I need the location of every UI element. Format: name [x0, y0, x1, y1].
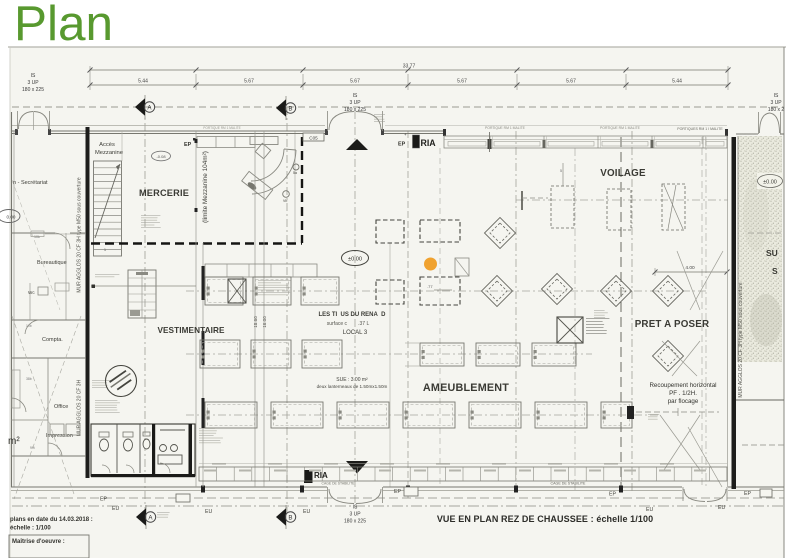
svg-text:±0.00: ±0.00 [763, 179, 777, 185]
svg-text:Compta.: Compta. [42, 337, 63, 343]
svg-text:4.00: 4.00 [685, 265, 695, 271]
svg-text:PRET A POSER: PRET A POSER [635, 319, 710, 330]
svg-text:5.67: 5.67 [566, 79, 576, 85]
svg-text:B: B [288, 105, 292, 112]
svg-text:+: + [404, 132, 407, 137]
svg-text:Maîtrise d'oeuvre :: Maîtrise d'oeuvre : [12, 539, 65, 545]
svg-text:180 x 225: 180 x 225 [22, 87, 44, 93]
svg-text:échelle : 1/100: échelle : 1/100 [10, 526, 51, 532]
svg-text:Recoupement horizontal: Recoupement horizontal [649, 382, 716, 389]
svg-text:VOILAGE: VOILAGE [600, 168, 646, 179]
svg-text:deux lanterneaux de 1.50mx1.50: deux lanterneaux de 1.50mx1.50m [317, 384, 388, 389]
svg-text:-0.08: -0.08 [156, 154, 166, 159]
svg-text:MUR AGGLOS 20 CF 3H: MUR AGGLOS 20 CF 3H [77, 379, 83, 436]
svg-text:par flocage: par flocage [668, 398, 699, 405]
svg-text:m²: m² [8, 436, 20, 447]
svg-text:0.00: 0.00 [7, 214, 16, 219]
svg-text:EU: EU [303, 509, 310, 515]
svg-text:10k: 10k [34, 235, 40, 239]
svg-text:EU: EU [646, 507, 653, 513]
svg-text:RIA: RIA [421, 138, 437, 148]
svg-text:SU: SU [766, 248, 778, 258]
svg-text:PF . 1/2H.: PF . 1/2H. [669, 390, 697, 397]
svg-text:(limite Mezzanine 104m²): (limite Mezzanine 104m²) [202, 151, 209, 223]
svg-text:5: 5 [560, 169, 562, 173]
svg-text:surface c .37 L: surface c .37 L [327, 321, 370, 327]
svg-text:PORTIQUES RM 1 I MALITE: PORTIQUES RM 1 I MALITE [677, 127, 723, 131]
svg-text:IS: IS [774, 93, 779, 99]
svg-text:180 x 2: 180 x 2 [768, 107, 785, 113]
svg-text:PORTIQUE RM 1 MALITE: PORTIQUE RM 1 MALITE [600, 126, 641, 130]
svg-text:5a: 5a [293, 171, 297, 175]
svg-text:VESTIMENTAIRE: VESTIMENTAIRE [157, 326, 225, 335]
svg-text:EP: EP [609, 492, 616, 498]
svg-text:plans en date du 14.03.2018 :: plans en date du 14.03.2018 : [10, 517, 93, 523]
svg-text:C05: C05 [309, 135, 318, 140]
svg-text:±0.00: ±0.00 [348, 257, 362, 263]
svg-text:5.67: 5.67 [457, 79, 467, 85]
svg-text:EP: EP [184, 142, 192, 148]
svg-text:SUE : 3.00 m²: SUE : 3.00 m² [336, 377, 368, 383]
svg-text:Office: Office [54, 404, 68, 410]
svg-text:MUR AGGLOS 20 CF 3H type M50 s: MUR AGGLOS 20 CF 3H type M50 sous couver… [738, 282, 744, 398]
svg-text:RIA: RIA [314, 471, 328, 480]
svg-text:5.44: 5.44 [672, 79, 682, 85]
svg-text:EU: EU [112, 506, 119, 512]
svg-text:MERCERIE: MERCERIE [139, 188, 189, 198]
svg-text:18.60: 18.60 [253, 316, 258, 328]
svg-text:3 UP: 3 UP [27, 80, 39, 86]
svg-text:5.44: 5.44 [138, 79, 148, 85]
svg-text:VUE EN PLAN REZ DE CHAUSSEE :: VUE EN PLAN REZ DE CHAUSSEE : échelle 1/… [437, 514, 653, 524]
svg-text:Bureautique: Bureautique [37, 260, 67, 266]
svg-text:PORTIQUE RM 1 MALITE: PORTIQUE RM 1 MALITE [203, 126, 241, 130]
svg-text:EP: EP [744, 491, 751, 497]
svg-text:IS: IS [31, 73, 36, 79]
svg-text:Wc: Wc [28, 290, 35, 295]
svg-text:EU: EU [205, 509, 212, 515]
svg-text:180 x 225: 180 x 225 [344, 519, 366, 525]
svg-text:EU: EU [718, 505, 725, 511]
svg-text:B: B [288, 514, 292, 521]
svg-text:3 UP: 3 UP [349, 100, 361, 106]
svg-text:5.67: 5.67 [244, 79, 254, 85]
svg-text:IS: IS [353, 93, 358, 99]
svg-text:5.67: 5.67 [350, 79, 360, 85]
svg-text:33.77: 33.77 [403, 64, 416, 70]
svg-text:CAGE DE STABILITE: CAGE DE STABILITE [551, 482, 586, 486]
svg-text:LES TI US DU RENA D: LES TI US DU RENA D [318, 312, 386, 318]
svg-text:EP: EP [394, 489, 401, 495]
svg-text:PORTIQUE RM 1 MALITE: PORTIQUE RM 1 MALITE [485, 126, 526, 130]
svg-text:16.00: 16.00 [262, 316, 267, 328]
svg-text:MUR AGGLOS 20 CF 3H type M50 s: MUR AGGLOS 20 CF 3H type M50 sous couver… [77, 177, 83, 293]
svg-text:3 UP: 3 UP [349, 512, 361, 518]
svg-text:EP: EP [398, 142, 406, 148]
svg-text:n - Secrétariat: n - Secrétariat [13, 180, 48, 186]
svg-text:S: S [772, 266, 778, 276]
svg-text:Plan: Plan [14, 0, 113, 51]
svg-text:38b: 38b [26, 377, 32, 381]
svg-text:EP: EP [100, 497, 107, 503]
svg-text:LOCAL 3: LOCAL 3 [343, 330, 368, 336]
svg-text:3 UP: 3 UP [770, 100, 782, 106]
svg-text:IS: IS [353, 505, 358, 511]
svg-text:Accès: Accès [99, 142, 115, 148]
svg-text:CAGE DE STABILITE: CAGE DE STABILITE [322, 482, 356, 486]
svg-text:AMEUBLEMENT: AMEUBLEMENT [423, 382, 509, 394]
svg-text:Vb: Vb [283, 199, 287, 203]
svg-text:Mezzanine: Mezzanine [95, 150, 123, 156]
svg-text:.77: .77 [427, 284, 433, 289]
